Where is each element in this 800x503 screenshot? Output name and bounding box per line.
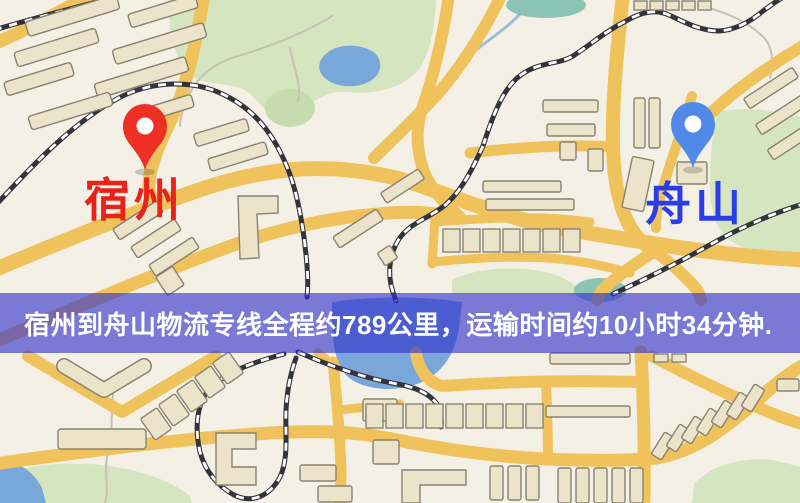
map-canvas[interactable] xyxy=(0,0,800,503)
route-summary-text: 宿州到舟山物流专线全程约789公里，运输时间约10小时34分钟. xyxy=(0,305,772,342)
route-banner: 宿州到舟山物流专线全程约789公里，运输时间约10小时34分钟. xyxy=(0,293,800,353)
origin-pin[interactable] xyxy=(123,104,167,176)
origin-pin-hole xyxy=(137,118,154,135)
destination-label: 舟山 xyxy=(645,181,745,227)
map-view: 宿州 舟山 宿州到舟山物流专线全程约789公里，运输时间约10小时34分钟. xyxy=(0,0,800,503)
origin-label: 宿州 xyxy=(84,177,184,223)
destination-pin-hole xyxy=(685,116,702,133)
